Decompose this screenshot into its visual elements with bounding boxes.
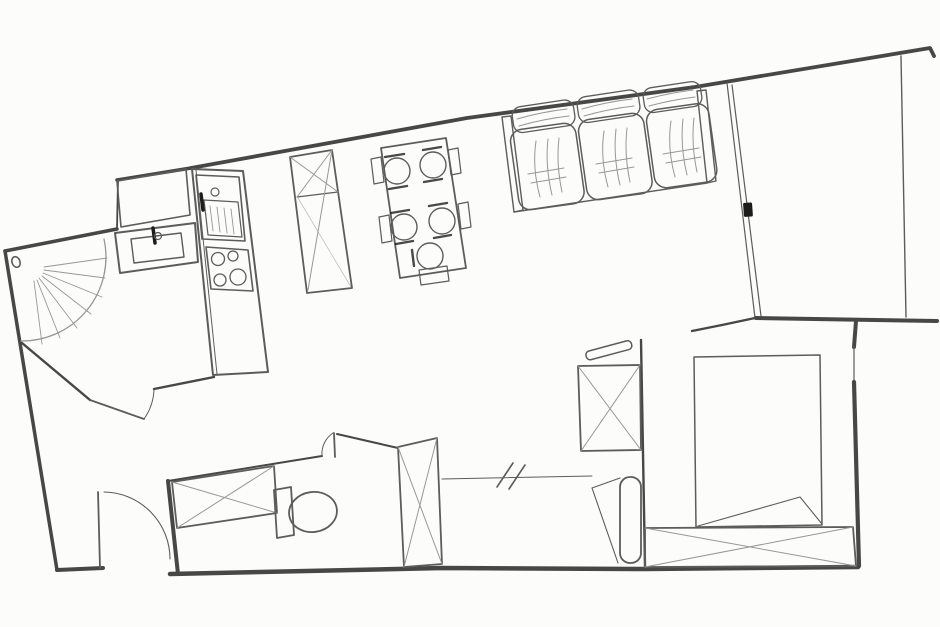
chair-back-tick-2 bbox=[389, 186, 407, 189]
entry-door-leaf bbox=[98, 492, 100, 568]
shower-arc bbox=[21, 239, 106, 341]
floor-plan-page bbox=[0, 0, 940, 627]
dining-chair-1 bbox=[384, 158, 410, 184]
sink-hatch-3 bbox=[224, 208, 227, 233]
chair-back-tick-1 bbox=[385, 154, 404, 157]
sink-hatch-1 bbox=[210, 206, 213, 231]
wall-bottom bbox=[170, 567, 858, 574]
tall-cabinet-shelf bbox=[297, 192, 338, 197]
burner-2 bbox=[228, 251, 238, 261]
sofa-arm-left bbox=[502, 116, 523, 212]
chair-back-tick-4 bbox=[424, 179, 442, 182]
sink-hatch-4 bbox=[231, 209, 234, 234]
chair-back-tick-5 bbox=[391, 210, 409, 213]
dining-chair-4 bbox=[429, 208, 455, 234]
sofa-fabric-line-13 bbox=[693, 118, 697, 172]
sink-knob bbox=[211, 188, 219, 196]
hall-door-arc bbox=[144, 390, 154, 419]
sofa-fabric-line-6 bbox=[603, 131, 608, 187]
wall-bath-right bbox=[337, 434, 398, 448]
burner-3 bbox=[214, 274, 226, 286]
bath-door-arc bbox=[322, 433, 333, 456]
bedroom-dresser-x-2 bbox=[581, 365, 640, 451]
chair-back-tick-8 bbox=[434, 235, 451, 238]
balcony-door-handle bbox=[743, 202, 753, 217]
bath-wardrobe-x-2 bbox=[404, 438, 437, 567]
dining-chair-5 bbox=[417, 243, 443, 269]
wall-bedroom-top bbox=[692, 318, 755, 331]
bed-blanket-fold bbox=[698, 497, 822, 526]
bath-door-leaf bbox=[334, 433, 335, 457]
sofa-fabric-line-1 bbox=[535, 141, 540, 197]
hall-door-leaf bbox=[90, 400, 144, 419]
shower-ray-5 bbox=[39, 278, 77, 328]
wall-bottom-left bbox=[57, 568, 103, 570]
radiator bbox=[620, 477, 641, 563]
burner-4 bbox=[230, 269, 246, 285]
vanity-basin bbox=[131, 233, 184, 263]
tall-cabinet bbox=[290, 150, 352, 293]
table-tab-left-2 bbox=[379, 215, 392, 243]
shower-ray-1 bbox=[44, 258, 107, 267]
sofa-fabric-line-8 bbox=[626, 128, 630, 182]
bedroom-dresser-x-1 bbox=[578, 366, 641, 450]
wall-hall-top bbox=[154, 377, 214, 389]
stove bbox=[206, 247, 253, 291]
sofa-fabric-line-17 bbox=[519, 116, 569, 126]
glass-wall-line-1 bbox=[727, 83, 755, 318]
dining-chair-2 bbox=[420, 152, 446, 178]
floorplan-svg bbox=[0, 0, 940, 627]
tall-cabinet-diag-1 bbox=[308, 150, 332, 290]
wall-top-main bbox=[191, 48, 934, 168]
door-knob bbox=[10, 255, 21, 268]
table-tab-right-2 bbox=[458, 202, 471, 229]
sofa-fabric-line-3 bbox=[558, 138, 562, 192]
sink-hatch-2 bbox=[217, 207, 220, 232]
chair-back-tick-7 bbox=[429, 203, 447, 206]
wall-bedroom-right-stub bbox=[854, 321, 856, 347]
dining-chair-3 bbox=[391, 214, 417, 240]
sofa-fabric-line-2 bbox=[547, 139, 552, 195]
table-tab-left-1 bbox=[371, 157, 384, 184]
glass-wall-line-2 bbox=[732, 85, 761, 316]
vanity-counter bbox=[115, 223, 198, 273]
bedroom-wardrobe-x-2 bbox=[645, 527, 853, 567]
burner-1 bbox=[212, 253, 225, 266]
chair-back-tick-9 bbox=[412, 250, 414, 266]
wall-outer-left bbox=[5, 251, 57, 570]
sofa-seat-cushion-3 bbox=[645, 102, 718, 189]
wall-outer-topleft bbox=[5, 229, 117, 251]
wall-balcony-right bbox=[901, 56, 906, 317]
bedroom-shelf bbox=[585, 340, 633, 361]
sink-basin bbox=[204, 200, 242, 237]
chair-back-tick-3 bbox=[423, 147, 441, 150]
table-tab-right-1 bbox=[448, 148, 461, 175]
door-wedge-line-2 bbox=[592, 478, 620, 488]
wall-shower-inner bbox=[22, 343, 90, 400]
opening-slash-1 bbox=[497, 463, 513, 487]
sink-faucet bbox=[201, 194, 203, 210]
sofa-fabric-line-7 bbox=[615, 129, 620, 185]
shower-ray-4 bbox=[42, 276, 91, 314]
entry-door-arc bbox=[104, 492, 170, 559]
wall-balcony-bottom bbox=[756, 318, 937, 321]
tall-cabinet-x-2 bbox=[297, 150, 332, 197]
sofa-fabric-line-11 bbox=[670, 121, 675, 177]
chair-back-tick-6 bbox=[396, 241, 413, 244]
sofa-fabric-line-12 bbox=[682, 119, 687, 175]
washing-machine-x-2 bbox=[177, 466, 274, 528]
door-wedge-line-1 bbox=[592, 488, 618, 563]
wall-bath-top bbox=[168, 456, 322, 481]
tall-cabinet-diag-2 bbox=[298, 198, 351, 287]
